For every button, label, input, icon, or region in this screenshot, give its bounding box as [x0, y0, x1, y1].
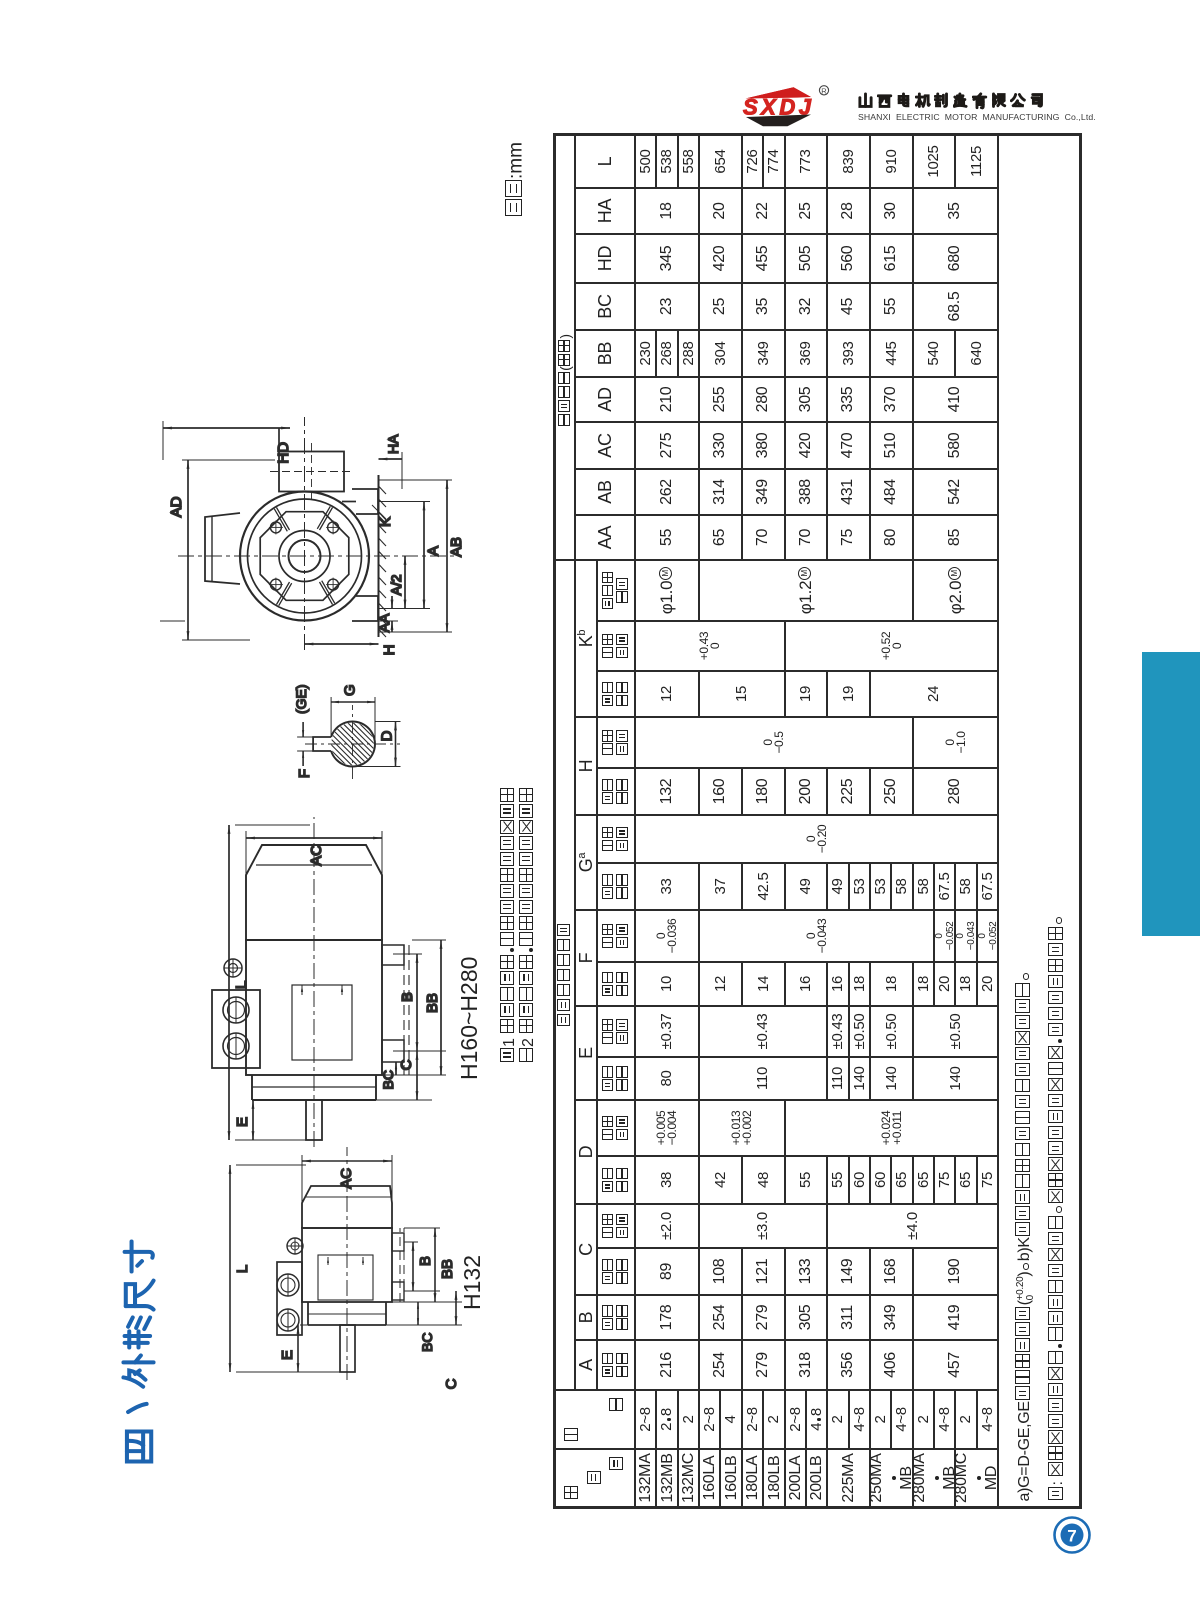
- svg-text:AB: AB: [448, 537, 465, 557]
- svg-text:HA: HA: [385, 434, 401, 454]
- svg-text:BB: BB: [424, 993, 441, 1013]
- svg-text:E: E: [279, 1350, 296, 1360]
- svg-text:7: 7: [1067, 1527, 1076, 1546]
- svg-text:AC: AC: [338, 1168, 355, 1189]
- svg-text:BC: BC: [380, 1070, 396, 1089]
- svg-text:A: A: [425, 546, 442, 556]
- svg-text:HD: HD: [275, 442, 292, 464]
- svg-text:AC: AC: [308, 845, 325, 866]
- svg-text:H: H: [381, 645, 398, 656]
- svg-text:BC: BC: [419, 1333, 435, 1352]
- svg-text:C: C: [398, 1059, 415, 1070]
- svg-text:H132: H132: [459, 1255, 485, 1310]
- svg-text:L: L: [233, 981, 250, 989]
- svg-text:G: G: [342, 684, 359, 696]
- svg-text:F: F: [296, 769, 313, 778]
- svg-text:BB: BB: [439, 1259, 456, 1279]
- svg-text:B: B: [417, 1256, 434, 1266]
- svg-text:(GE): (GE): [293, 684, 309, 714]
- svg-text:H160~H280: H160~H280: [456, 957, 482, 1080]
- svg-text:R: R: [821, 87, 827, 96]
- svg-text:B: B: [399, 992, 416, 1002]
- svg-text:E: E: [234, 1117, 251, 1127]
- svg-text:L: L: [234, 1265, 251, 1273]
- svg-text:AD: AD: [168, 496, 185, 517]
- svg-text:D: D: [379, 730, 396, 741]
- svg-text:A/2: A/2: [388, 574, 404, 595]
- svg-text:C: C: [443, 1378, 460, 1389]
- svg-text:AA: AA: [376, 613, 392, 632]
